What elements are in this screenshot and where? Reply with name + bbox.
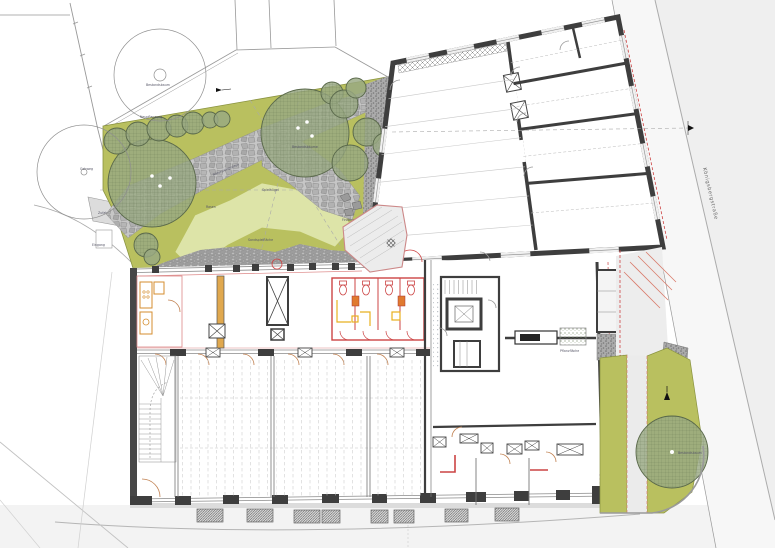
survey-marker-icon bbox=[216, 88, 231, 92]
site-plan-drawing: Königsbergstraße Gehweg Zufahrt Eingang bbox=[0, 0, 775, 548]
svg-text:Rasen: Rasen bbox=[206, 205, 216, 209]
upper-building-outline bbox=[368, 17, 663, 262]
svg-text:Pflanzfläche: Pflanzfläche bbox=[560, 349, 579, 353]
big-tree-label: Bestandsbaum bbox=[146, 83, 170, 87]
west-wall bbox=[130, 268, 137, 505]
svg-text:Spielhügel: Spielhügel bbox=[262, 188, 279, 192]
main-building bbox=[130, 259, 612, 523]
column-box-icon bbox=[209, 324, 225, 338]
tree-canopy: Bestandsbaum bbox=[636, 416, 708, 488]
svg-text:Sandspielfläche: Sandspielfläche bbox=[248, 238, 273, 242]
green-strip-west bbox=[600, 355, 627, 513]
porch bbox=[597, 270, 617, 360]
svg-text:Bestandsbaum: Bestandsbaum bbox=[678, 451, 702, 455]
label-eingang: Eingang bbox=[92, 243, 105, 247]
site-plan-page: Königsbergstraße Gehweg Zufahrt Eingang bbox=[0, 0, 775, 548]
stair-elevator bbox=[439, 277, 499, 371]
planting-bed bbox=[560, 328, 586, 345]
svg-text:Neupflanzung: Neupflanzung bbox=[140, 115, 162, 119]
svg-text:Bestandsbäume: Bestandsbäume bbox=[292, 145, 318, 149]
driveway bbox=[616, 247, 668, 356]
